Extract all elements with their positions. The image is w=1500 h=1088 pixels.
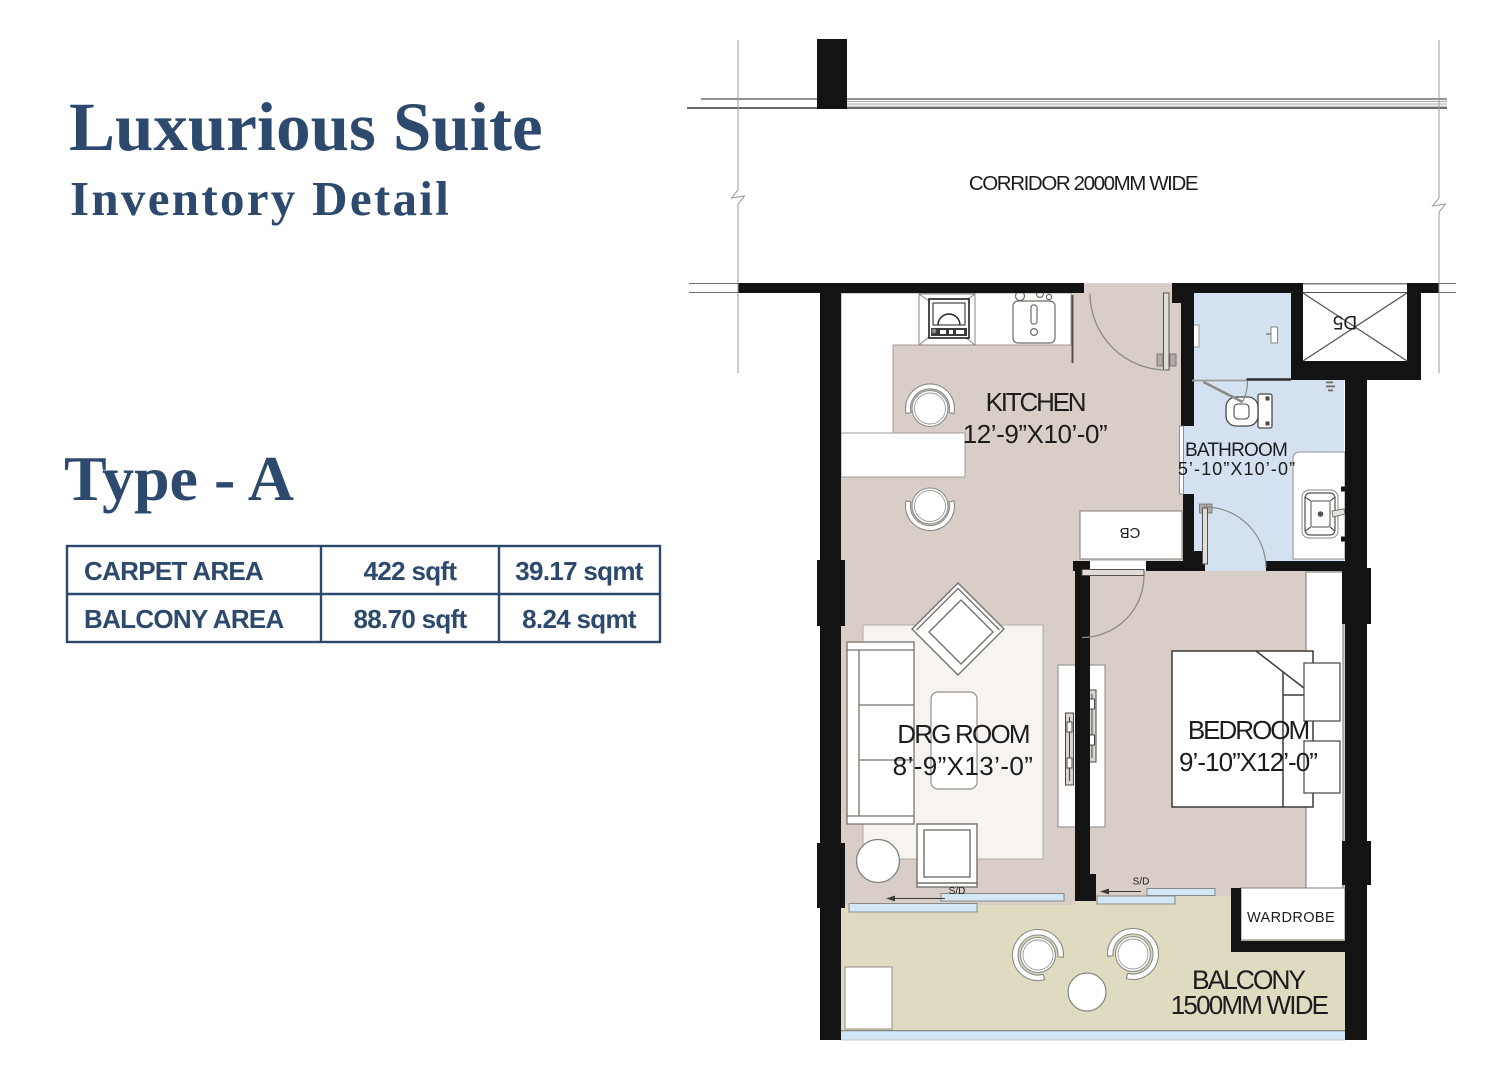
svg-text:S/D: S/D xyxy=(949,886,966,897)
svg-text:BALCONY AREA: BALCONY AREA xyxy=(84,604,285,634)
svg-text:5’-10”X10’-0”: 5’-10”X10’-0” xyxy=(1178,459,1296,479)
svg-text:Type - A: Type - A xyxy=(64,443,294,514)
svg-text:S/D: S/D xyxy=(1133,877,1150,888)
svg-text:DRG ROOM: DRG ROOM xyxy=(897,719,1029,749)
svg-text:39.17 sqmt: 39.17 sqmt xyxy=(515,556,643,586)
svg-text:CB: CB xyxy=(1120,524,1141,541)
svg-text:D5: D5 xyxy=(1333,311,1357,332)
svg-text:9’-10”X12’-0”: 9’-10”X12’-0” xyxy=(1179,747,1317,777)
svg-text:12’-9”X10’-0”: 12’-9”X10’-0” xyxy=(963,419,1107,449)
svg-text:88.70 sqft: 88.70 sqft xyxy=(354,604,468,634)
svg-text:Inventory Detail: Inventory Detail xyxy=(70,171,451,226)
svg-text:8’-9”X13’-0”: 8’-9”X13’-0” xyxy=(893,751,1034,781)
svg-text:8.24 sqmt: 8.24 sqmt xyxy=(522,604,637,634)
svg-text:BEDROOM: BEDROOM xyxy=(1188,715,1309,745)
svg-text:CARPET AREA: CARPET AREA xyxy=(84,556,264,586)
svg-text:Luxurious Suite: Luxurious Suite xyxy=(69,89,543,165)
svg-text:WARDROBE: WARDROBE xyxy=(1247,910,1335,926)
svg-text:422 sqft: 422 sqft xyxy=(364,556,458,586)
svg-text:KITCHEN: KITCHEN xyxy=(986,387,1085,417)
svg-text:1500MM WIDE: 1500MM WIDE xyxy=(1171,990,1329,1020)
svg-text:CORRIDOR 2000MM WIDE: CORRIDOR 2000MM WIDE xyxy=(969,172,1198,195)
svg-text:BATHROOM: BATHROOM xyxy=(1185,440,1287,461)
